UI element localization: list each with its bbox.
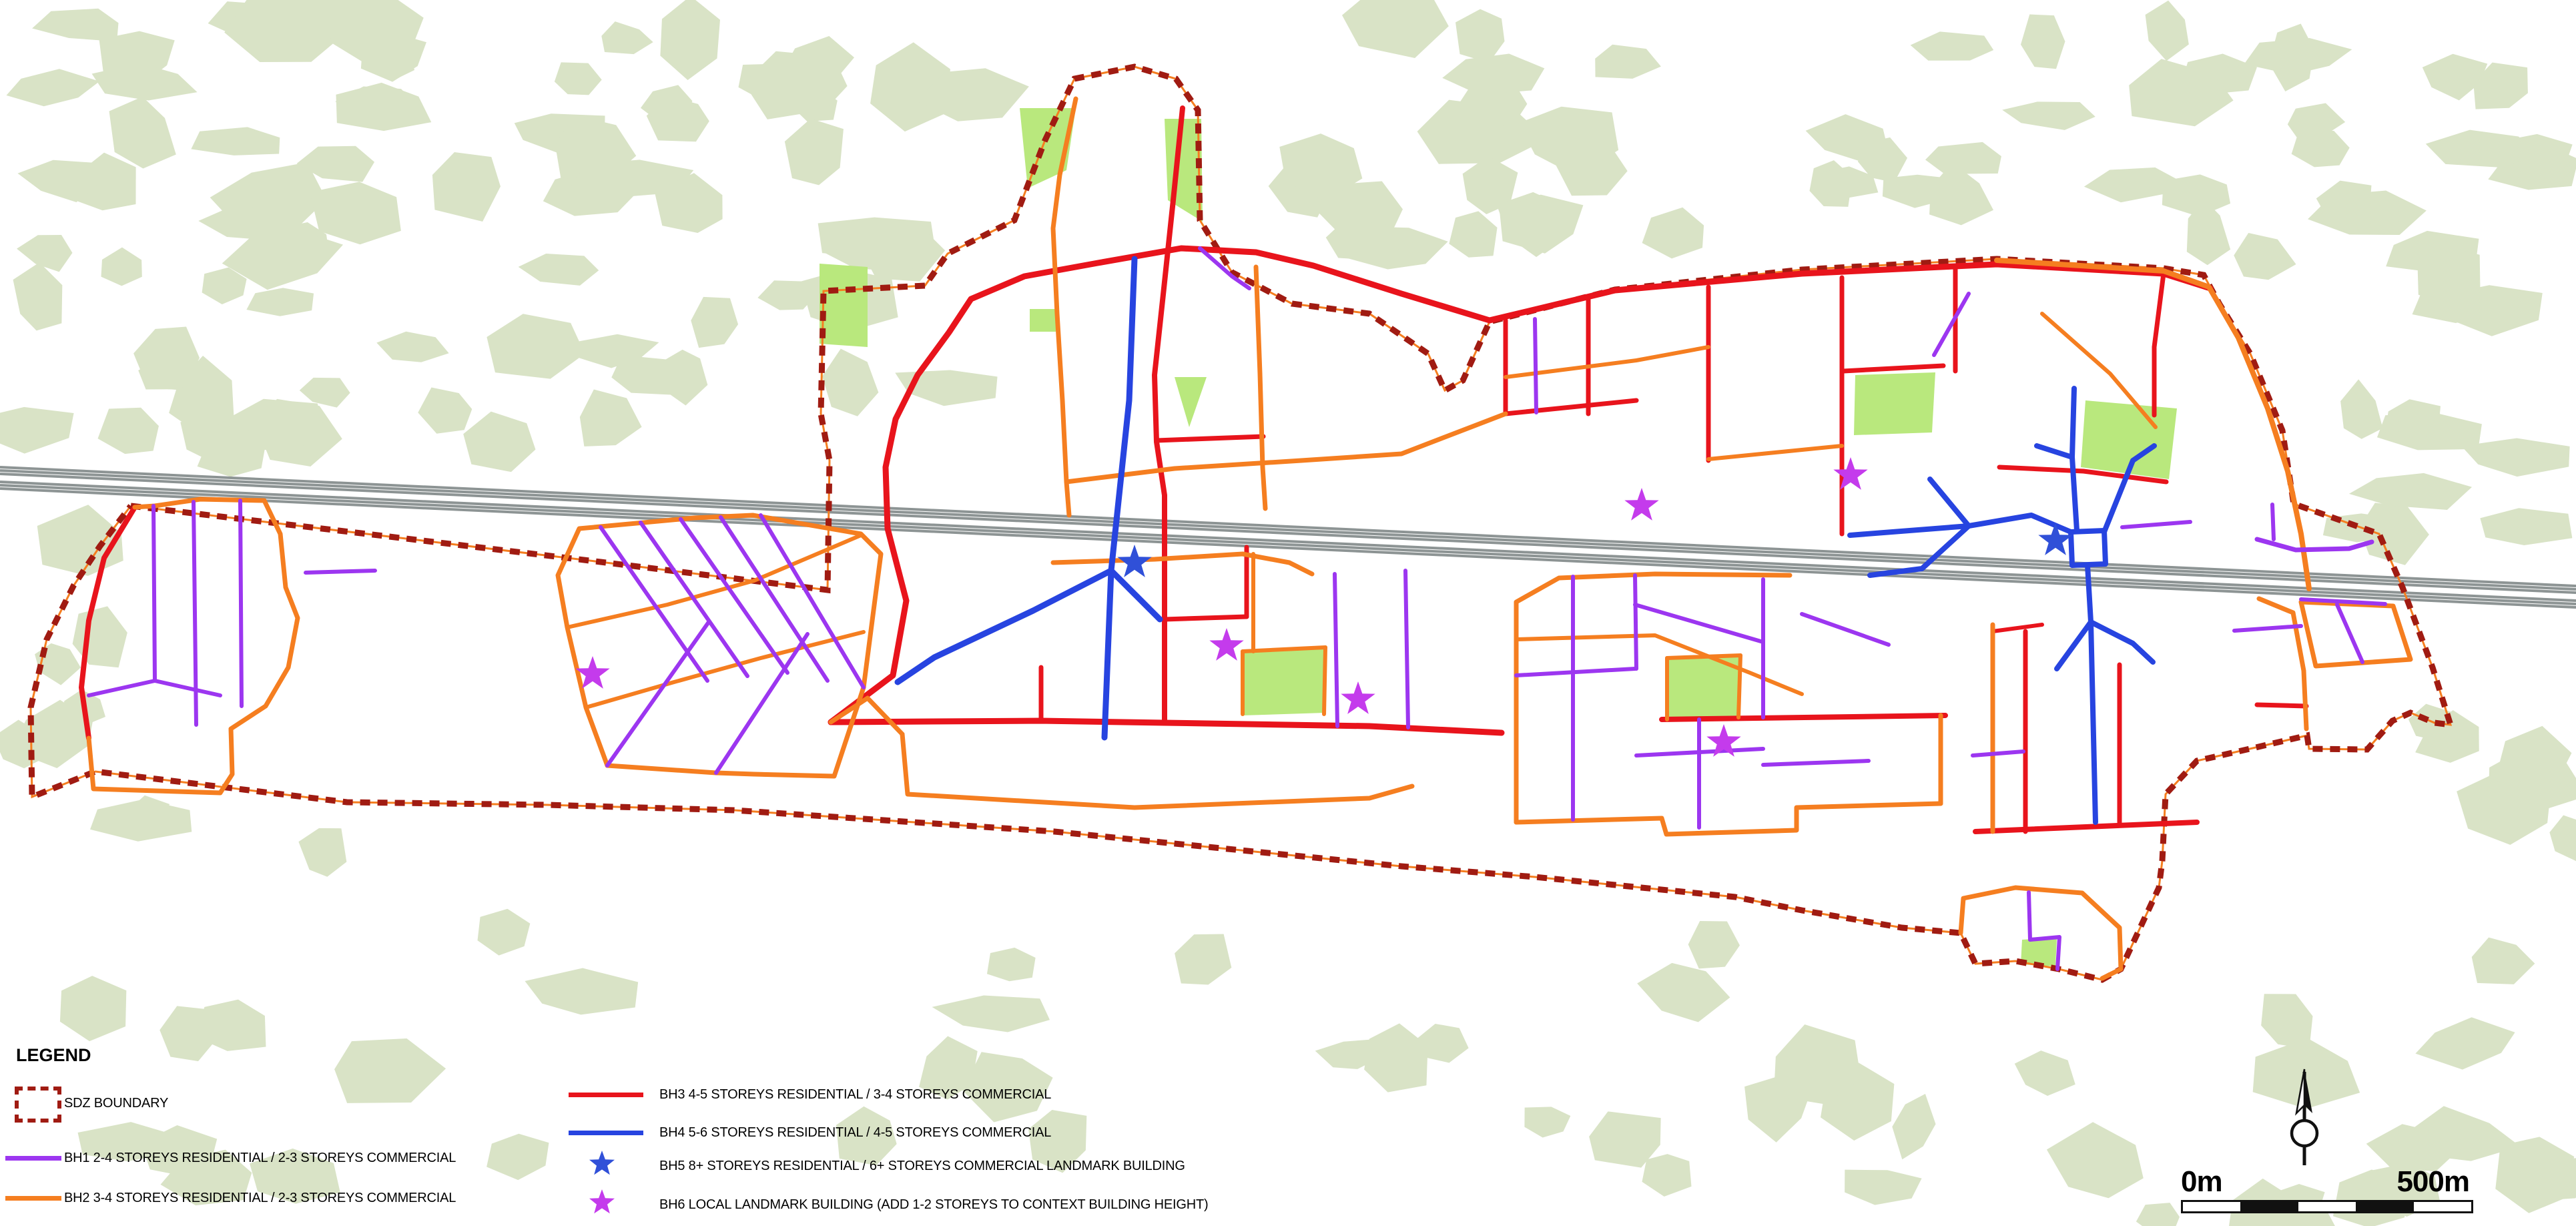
- orange-road: [902, 734, 1412, 808]
- blue-road: [1930, 479, 1969, 526]
- blue-road: [1104, 571, 1111, 737]
- purple-road: [2122, 522, 2190, 527]
- legend-item-bh4: BH4 5-6 STOREYS RESIDENTIAL / 4-5 STOREY…: [659, 1125, 1051, 1141]
- scale-segment: [2414, 1202, 2471, 1211]
- scale-bar: [2181, 1200, 2473, 1213]
- purple-road: [1763, 761, 1869, 765]
- purple-road: [2029, 892, 2030, 940]
- blue-road: [2091, 622, 2096, 822]
- blue-road: [2087, 565, 2091, 622]
- scale-max-label: 500m: [2362, 1165, 2469, 1199]
- bh6-landmark-star: [1624, 488, 1658, 521]
- red-road: [2257, 705, 2306, 706]
- legend-item-bh2: BH2 3-4 STOREYS RESIDENTIAL / 2-3 STOREY…: [64, 1191, 456, 1206]
- purple-road: [1516, 669, 1635, 675]
- scale-segment: [2298, 1202, 2356, 1211]
- bh5-landmark-star: [2038, 523, 2072, 555]
- scale-segment: [2183, 1202, 2240, 1211]
- scale-zero-label: 0m: [2181, 1165, 2222, 1199]
- orange-road: [2259, 599, 2306, 729]
- red-road: [1843, 366, 1943, 371]
- blue-road: [898, 571, 1111, 682]
- orange-road: [2301, 602, 2410, 666]
- orange-road: [831, 698, 902, 734]
- bh5-landmark-star: [1117, 545, 1151, 577]
- purple-road: [641, 523, 747, 676]
- purple-road: [1535, 319, 1536, 412]
- purple-road: [1973, 751, 2023, 755]
- bh5-star-icon: [587, 1149, 617, 1179]
- map-canvas: LEGEND SDZ BOUNDARY BH1 2-4 STOREYS RESI…: [0, 0, 2576, 1226]
- red-road: [1490, 264, 2210, 320]
- sdz-building-heights-map: [0, 0, 2576, 1226]
- legend-title: LEGEND: [16, 1045, 91, 1066]
- purple-road: [601, 527, 707, 681]
- red-road: [1993, 625, 2042, 631]
- bh1-line-swatch: [5, 1156, 61, 1161]
- legend-item-bh1: BH1 2-4 STOREYS RESIDENTIAL / 2-3 STOREY…: [64, 1151, 456, 1166]
- scale-segment: [2356, 1202, 2413, 1211]
- sdz-boundary-swatch: [15, 1087, 61, 1123]
- orange-road: [558, 515, 881, 776]
- blue-road: [1111, 571, 1160, 619]
- purple-road: [2337, 605, 2362, 662]
- orange-road: [1516, 635, 1802, 694]
- purple-road: [306, 571, 375, 573]
- purple-road: [716, 634, 808, 773]
- purple-road: [2272, 505, 2274, 539]
- north-arrow-icon: [2282, 1066, 2329, 1173]
- bh2-line-swatch: [5, 1196, 61, 1201]
- purple-road: [1802, 614, 1889, 645]
- legend-item-bh5: BH5 8+ STOREYS RESIDENTIAL / 6+ STOREYS …: [659, 1159, 1185, 1174]
- legend-item-bh6: BH6 LOCAL LANDMARK BUILDING (ADD 1-2 STO…: [659, 1197, 1208, 1213]
- bh3-line-swatch: [569, 1093, 643, 1097]
- purple-road: [1405, 571, 1408, 727]
- orange-road: [1053, 554, 1312, 574]
- orange-road: [1324, 647, 1325, 714]
- blue-road: [2057, 622, 2091, 669]
- red-road: [1506, 400, 1636, 414]
- bh6-landmark-star: [1341, 681, 1375, 714]
- purple-road: [89, 681, 220, 695]
- red-road: [2154, 274, 2164, 415]
- legend-item-sdz-boundary: SDZ BOUNDARY: [64, 1096, 168, 1111]
- orange-road: [1667, 655, 1740, 658]
- bh6-landmark-star: [1209, 628, 1243, 661]
- context-buildings: [0, 0, 2576, 1226]
- red-road: [1165, 617, 1247, 619]
- orange-road: [1256, 267, 1265, 509]
- purple-road: [1635, 575, 1636, 669]
- purple-road: [1934, 294, 1969, 355]
- purple-road: [607, 622, 709, 765]
- blue-road: [2091, 622, 2153, 662]
- scale-segment: [2240, 1202, 2298, 1211]
- orange-road: [1516, 804, 1941, 834]
- purple-road: [153, 506, 155, 681]
- bh6-star-icon: [587, 1188, 617, 1217]
- red-road: [1157, 436, 1263, 440]
- purple-road: [240, 501, 242, 706]
- legend-item-bh3: BH3 4-5 STOREYS RESIDENTIAL / 3-4 STOREY…: [659, 1087, 1051, 1103]
- orange-road: [1738, 655, 1740, 717]
- orange-road: [567, 535, 861, 627]
- bh4-line-swatch: [569, 1131, 643, 1135]
- bh6-landmark-star: [1833, 457, 1867, 490]
- orange-road: [1708, 446, 1842, 459]
- purple-road: [2234, 626, 2301, 631]
- blue-road: [2071, 531, 2106, 565]
- purple-road: [1335, 574, 1337, 726]
- blue-road: [2037, 446, 2072, 457]
- orange-road: [1066, 414, 1506, 482]
